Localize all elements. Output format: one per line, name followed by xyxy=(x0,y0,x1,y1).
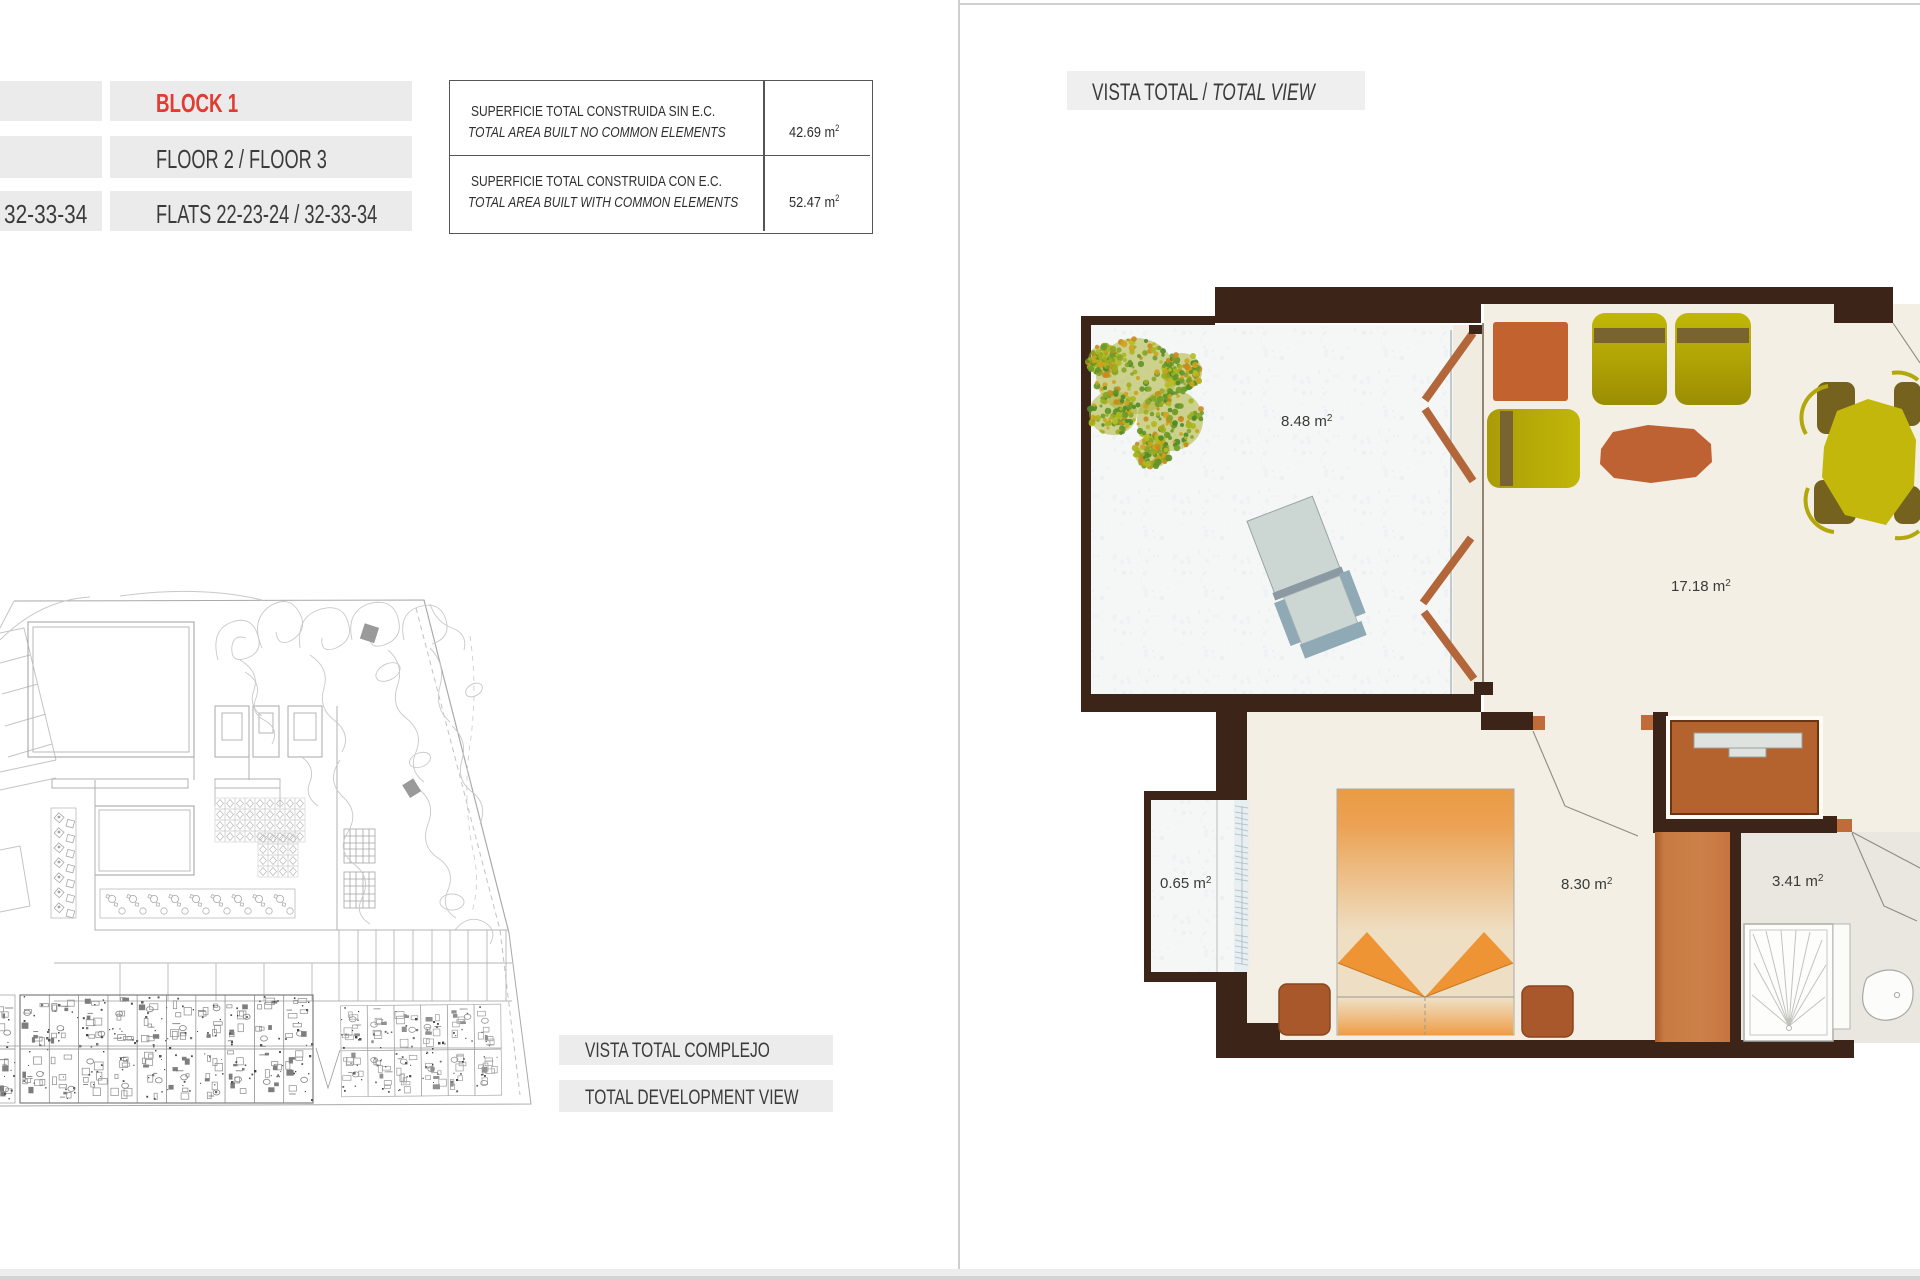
svg-text:8.48 m2: 8.48 m2 xyxy=(1281,413,1333,430)
svg-text:0.65 m2: 0.65 m2 xyxy=(1160,875,1212,892)
svg-text:8.30 m2: 8.30 m2 xyxy=(1561,876,1613,893)
svg-text:3.41 m2: 3.41 m2 xyxy=(1772,873,1824,890)
svg-text:17.18 m2: 17.18 m2 xyxy=(1671,578,1731,595)
